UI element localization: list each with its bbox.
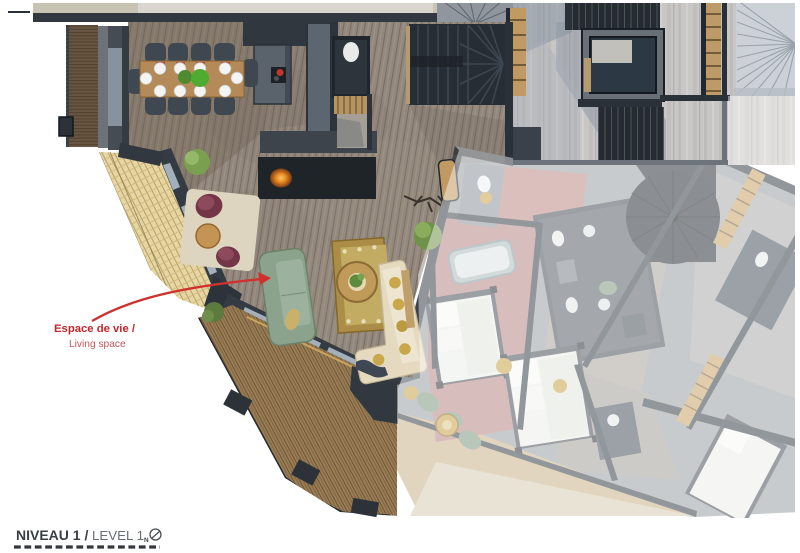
svg-text:N: N — [144, 537, 149, 544]
svg-text:LEVEL 1: LEVEL 1 — [92, 528, 144, 543]
svg-text:Living space: Living space — [69, 339, 126, 350]
svg-text:Espace de vie /: Espace de vie / — [54, 323, 136, 335]
svg-text:NIVEAU 1 /: NIVEAU 1 / — [16, 527, 88, 543]
